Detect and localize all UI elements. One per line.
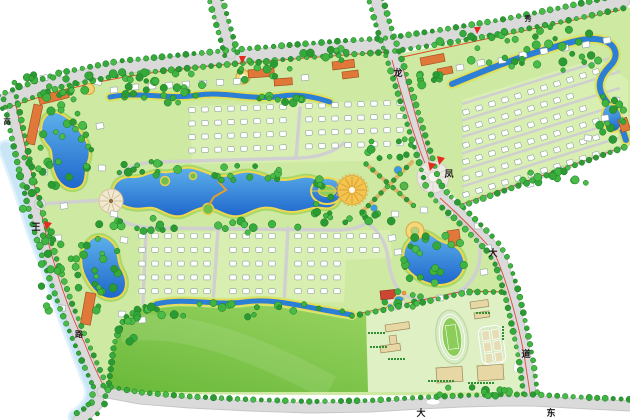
tree-icon — [466, 289, 472, 295]
court — [495, 352, 504, 362]
road-label-lu: 路 — [75, 329, 84, 339]
hedge — [489, 382, 491, 384]
tree-icon — [479, 243, 485, 249]
tree-icon — [222, 3, 228, 9]
tree-icon — [433, 71, 440, 78]
tree-icon — [392, 34, 397, 39]
tree-icon — [153, 159, 161, 167]
tree-icon — [164, 99, 171, 106]
house-footprint — [230, 247, 236, 252]
road-label-gao: 高 — [4, 117, 11, 126]
tree-icon — [232, 61, 238, 67]
tree-icon — [311, 41, 315, 45]
tree-icon — [293, 95, 300, 102]
tree-icon — [30, 95, 34, 99]
tree-icon — [520, 383, 525, 388]
tree-icon — [562, 393, 568, 399]
tree-icon — [72, 263, 79, 270]
hedge — [371, 332, 373, 334]
tree-icon — [141, 95, 147, 101]
tree-icon — [428, 192, 434, 198]
road-label-da-e: 大 — [488, 247, 497, 259]
tree-icon — [451, 215, 457, 221]
tree-icon — [532, 34, 538, 40]
tree-icon — [22, 191, 27, 196]
tree-icon — [467, 56, 475, 64]
tree-icon — [209, 6, 215, 12]
tree-icon — [87, 64, 92, 69]
tree-icon — [395, 303, 401, 309]
tree-icon — [406, 275, 413, 282]
tree-icon — [547, 7, 553, 13]
tree-icon — [430, 156, 435, 161]
house-footprint — [384, 128, 391, 133]
house-footprint — [321, 247, 327, 252]
house-footprint — [178, 247, 184, 252]
tree-icon — [559, 58, 567, 66]
tree-icon — [511, 271, 515, 275]
tree-icon — [579, 160, 584, 165]
house-footprint — [230, 289, 236, 294]
tree-icon — [382, 299, 388, 305]
house-footprint — [308, 247, 314, 252]
tree-icon — [255, 45, 261, 51]
house-footprint — [215, 120, 222, 125]
tree-icon — [243, 397, 248, 402]
tree-icon — [369, 139, 374, 144]
tree-icon — [416, 159, 422, 165]
orange-roof-building — [342, 70, 359, 79]
tree-icon — [434, 171, 440, 177]
tree-icon — [404, 165, 409, 170]
tree-icon — [109, 284, 117, 292]
hedge — [474, 382, 476, 384]
tree-icon — [97, 367, 102, 372]
tree-icon — [547, 393, 552, 398]
house-footprint — [215, 147, 222, 152]
hedge — [471, 382, 473, 384]
house-footprint — [388, 235, 396, 242]
tree-icon — [290, 307, 297, 314]
tree-icon — [579, 395, 583, 399]
tree-icon — [519, 375, 524, 380]
hedge — [370, 346, 372, 348]
tree-icon — [83, 80, 88, 85]
tree-icon — [113, 339, 118, 344]
generated-map-layers — [0, 0, 630, 420]
house-footprint — [241, 146, 248, 151]
tree-icon — [374, 23, 379, 28]
tree-icon — [171, 392, 177, 398]
tree-icon — [127, 57, 133, 63]
house-footprint — [582, 41, 590, 48]
tree-icon — [427, 148, 433, 154]
house-footprint — [308, 234, 314, 239]
tree-icon — [50, 237, 56, 243]
tree-icon — [565, 26, 572, 33]
road-label-feng: 凤 — [444, 169, 453, 180]
house-footprint — [345, 115, 352, 120]
road-label-wang: 王 — [31, 222, 40, 233]
tree-icon — [55, 299, 60, 304]
house-footprint — [345, 142, 352, 147]
house-footprint — [603, 37, 611, 44]
tree-icon — [511, 29, 516, 34]
tree-icon — [187, 394, 192, 399]
tree-icon — [371, 14, 377, 20]
tree-icon — [466, 201, 472, 207]
tree-icon — [566, 17, 572, 23]
tree-icon — [401, 257, 408, 264]
house-footprint — [371, 128, 378, 133]
tree-icon — [160, 84, 167, 91]
tree-icon — [475, 289, 481, 295]
tree-icon — [327, 40, 332, 45]
tree-icon — [155, 391, 161, 397]
tree-icon — [14, 159, 20, 165]
tree-icon — [80, 251, 88, 259]
tree-icon — [143, 87, 149, 93]
tree-icon — [25, 82, 30, 87]
tree-icon — [494, 267, 500, 273]
tree-icon — [512, 36, 518, 42]
tree-icon — [156, 221, 164, 229]
tree-icon — [37, 201, 43, 207]
tree-icon — [516, 353, 520, 357]
tree-icon — [458, 393, 463, 398]
tree-icon — [395, 289, 401, 295]
tree-icon — [313, 208, 320, 215]
house-footprint — [267, 105, 274, 110]
tree-icon — [17, 109, 23, 115]
tree-icon — [95, 236, 100, 241]
tree-icon — [555, 393, 560, 398]
house-footprint — [243, 261, 249, 266]
house-footprint — [319, 116, 326, 121]
tree-icon — [43, 303, 50, 310]
sun-plaza-center — [349, 187, 356, 194]
tree-icon — [508, 321, 514, 327]
house-footprint — [165, 247, 171, 252]
tree-icon — [462, 226, 468, 232]
tree-icon — [207, 49, 213, 55]
tree-icon — [247, 46, 252, 51]
tree-icon — [524, 180, 530, 186]
hedge — [368, 332, 370, 334]
tree-icon — [589, 63, 595, 69]
tree-icon — [436, 297, 440, 301]
tree-icon — [621, 144, 627, 150]
tree-icon — [321, 219, 329, 227]
tree-icon — [436, 37, 444, 45]
house-footprint — [254, 119, 261, 124]
tree-icon — [208, 0, 212, 4]
tree-icon — [365, 311, 370, 316]
tree-icon — [474, 238, 479, 243]
tree-icon — [291, 399, 295, 403]
tree-icon — [53, 130, 58, 135]
tree-icon — [256, 59, 262, 65]
tree-icon — [403, 114, 407, 118]
tree-icon — [101, 375, 106, 380]
tree-icon — [558, 20, 563, 25]
tree-icon — [351, 37, 356, 42]
court — [491, 329, 500, 339]
tree-icon — [500, 248, 505, 253]
tree-icon — [414, 152, 420, 158]
house-footprint — [256, 289, 262, 294]
tree-icon — [605, 9, 611, 15]
tree-icon — [534, 382, 538, 386]
tree-icon — [315, 399, 320, 404]
house-footprint — [152, 234, 158, 239]
tree-icon — [433, 242, 441, 250]
tree-icon — [214, 222, 222, 230]
tree-icon — [63, 321, 68, 326]
tree-icon — [35, 166, 41, 172]
hedge — [437, 380, 439, 382]
tree-icon — [397, 154, 403, 160]
tree-icon — [611, 396, 616, 401]
tree-icon — [25, 148, 31, 154]
tree-icon — [265, 175, 271, 181]
tree-icon — [339, 58, 344, 63]
house-footprint — [373, 234, 379, 239]
house-footprint — [295, 234, 301, 239]
tree-icon — [600, 94, 605, 99]
tree-icon — [422, 133, 428, 139]
tree-icon — [75, 272, 81, 278]
tree-icon — [556, 6, 561, 11]
tree-icon — [88, 346, 93, 351]
tree-icon — [352, 51, 358, 57]
hedge — [431, 380, 433, 382]
house-footprint — [332, 129, 339, 134]
tree-icon — [460, 204, 465, 209]
tree-icon — [389, 306, 395, 312]
tree-icon — [70, 336, 75, 341]
house-footprint — [601, 115, 609, 122]
tree-icon — [76, 317, 80, 321]
tree-icon — [218, 303, 226, 311]
house-footprint — [204, 234, 210, 239]
tree-icon — [334, 38, 340, 44]
tree-icon — [263, 45, 267, 49]
tree-icon — [514, 345, 518, 349]
house-footprint — [269, 261, 275, 266]
house-footprint — [110, 87, 118, 93]
tree-icon — [499, 289, 504, 294]
tree-icon — [599, 129, 606, 136]
tree-icon — [409, 87, 414, 92]
hedge — [502, 329, 504, 331]
tree-icon — [125, 318, 132, 325]
tree-icon — [143, 56, 148, 61]
tree-icon — [176, 100, 181, 105]
house-footprint — [295, 289, 301, 294]
tree-icon — [76, 351, 81, 356]
tree-icon — [585, 30, 593, 38]
tree-icon — [95, 361, 100, 366]
tree-icon — [416, 72, 422, 78]
tree-icon — [135, 226, 140, 231]
tree-icon — [216, 63, 222, 69]
tree-icon — [168, 54, 173, 59]
tree-icon — [210, 300, 217, 307]
tree-icon — [508, 15, 513, 20]
tree-icon — [450, 393, 456, 399]
tree-icon — [15, 102, 21, 108]
house-footprint — [139, 261, 145, 266]
tree-icon — [251, 397, 257, 403]
tree-icon — [81, 86, 89, 94]
tree-icon — [56, 70, 62, 76]
tree-icon — [48, 181, 55, 188]
tree-icon — [586, 394, 592, 400]
tree-icon — [379, 191, 384, 196]
house-footprint — [384, 141, 391, 146]
house-footprint — [269, 247, 275, 252]
hedge — [449, 380, 451, 382]
house-footprint — [334, 234, 340, 239]
tree-icon — [67, 294, 72, 299]
tree-icon — [385, 184, 390, 189]
house-footprint — [202, 107, 209, 112]
tree-icon — [306, 399, 312, 405]
tree-icon — [367, 37, 372, 42]
tree-icon — [513, 279, 517, 283]
tree-icon — [24, 185, 30, 191]
tree-icon — [480, 195, 486, 201]
tree-icon — [475, 393, 479, 397]
house-footprint — [420, 207, 428, 213]
tree-icon — [357, 312, 363, 318]
tree-icon — [192, 65, 198, 71]
house-footprint — [202, 134, 209, 139]
tree-icon — [354, 398, 360, 404]
tree-icon — [586, 157, 592, 163]
house-footprint — [308, 261, 314, 266]
tree-icon — [1, 97, 6, 102]
tree-icon — [111, 265, 118, 272]
tree-icon — [621, 119, 626, 124]
tree-icon — [267, 398, 271, 402]
tree-icon — [485, 392, 492, 399]
tree-icon — [14, 94, 19, 99]
house-footprint — [165, 261, 171, 266]
house-footprint — [321, 234, 327, 239]
house-footprint — [256, 247, 262, 252]
house-footprint — [139, 275, 145, 280]
tree-icon — [173, 84, 181, 92]
tree-icon — [594, 395, 600, 401]
tree-icon — [398, 171, 403, 176]
tree-icon — [245, 230, 250, 235]
house-footprint — [241, 133, 248, 138]
tree-icon — [398, 33, 403, 38]
tree-icon — [278, 43, 284, 49]
tree-icon — [372, 197, 377, 202]
tree-icon — [161, 92, 167, 98]
tree-icon — [523, 318, 527, 322]
tree-icon — [516, 359, 522, 365]
house-footprint — [267, 118, 274, 123]
house-footprint — [347, 247, 353, 252]
tree-icon — [31, 172, 36, 177]
tree-icon — [365, 217, 373, 225]
tree-icon — [327, 46, 334, 53]
tree-icon — [394, 396, 399, 401]
tree-icon — [184, 65, 190, 71]
tree-icon — [117, 386, 121, 390]
tree-icon — [421, 175, 426, 180]
tree-icon — [83, 132, 89, 138]
house-footprint — [384, 114, 391, 119]
hedge — [388, 358, 390, 360]
tree-icon — [303, 41, 309, 47]
tree-icon — [22, 98, 27, 103]
orange-roof-building — [274, 78, 292, 86]
house-footprint — [254, 146, 261, 151]
tree-icon — [340, 309, 345, 314]
house-footprint — [358, 101, 365, 106]
tree-icon — [318, 39, 324, 45]
tree-icon — [343, 38, 348, 43]
tree-icon — [79, 121, 87, 129]
hedge — [397, 358, 399, 360]
tree-icon — [553, 36, 558, 41]
tree-icon — [376, 30, 381, 35]
tree-icon — [218, 177, 224, 183]
tree-icon — [24, 198, 30, 204]
tree-icon — [277, 305, 282, 310]
tree-icon — [73, 256, 80, 263]
tree-icon — [445, 385, 451, 391]
tree-icon — [504, 297, 509, 302]
tree-icon — [367, 50, 373, 56]
tree-icon — [574, 16, 578, 20]
house-footprint — [332, 143, 339, 148]
tree-icon — [140, 169, 145, 174]
garden-node — [400, 182, 408, 190]
house-footprint — [477, 59, 485, 66]
tree-icon — [524, 326, 529, 331]
tree-icon — [403, 152, 409, 158]
tree-icon — [381, 46, 385, 50]
tree-icon — [317, 182, 322, 187]
tree-icon — [247, 174, 253, 180]
tree-icon — [614, 147, 620, 153]
tree-icon — [235, 396, 240, 401]
tree-icon — [85, 72, 93, 80]
hedge — [374, 332, 376, 334]
tree-icon — [579, 54, 585, 60]
tree-icon — [259, 398, 263, 402]
tree-icon — [404, 197, 409, 202]
tree-icon — [402, 137, 407, 142]
tree-icon — [420, 125, 426, 131]
tree-icon — [532, 41, 540, 49]
tree-icon — [276, 167, 281, 172]
tree-icon — [423, 182, 429, 188]
tree-icon — [467, 393, 471, 397]
tree-icon — [467, 211, 472, 216]
house-footprint — [230, 275, 236, 280]
tree-icon — [71, 97, 76, 102]
tree-icon — [410, 396, 415, 401]
tree-icon — [434, 199, 438, 203]
tree-icon — [121, 161, 128, 168]
